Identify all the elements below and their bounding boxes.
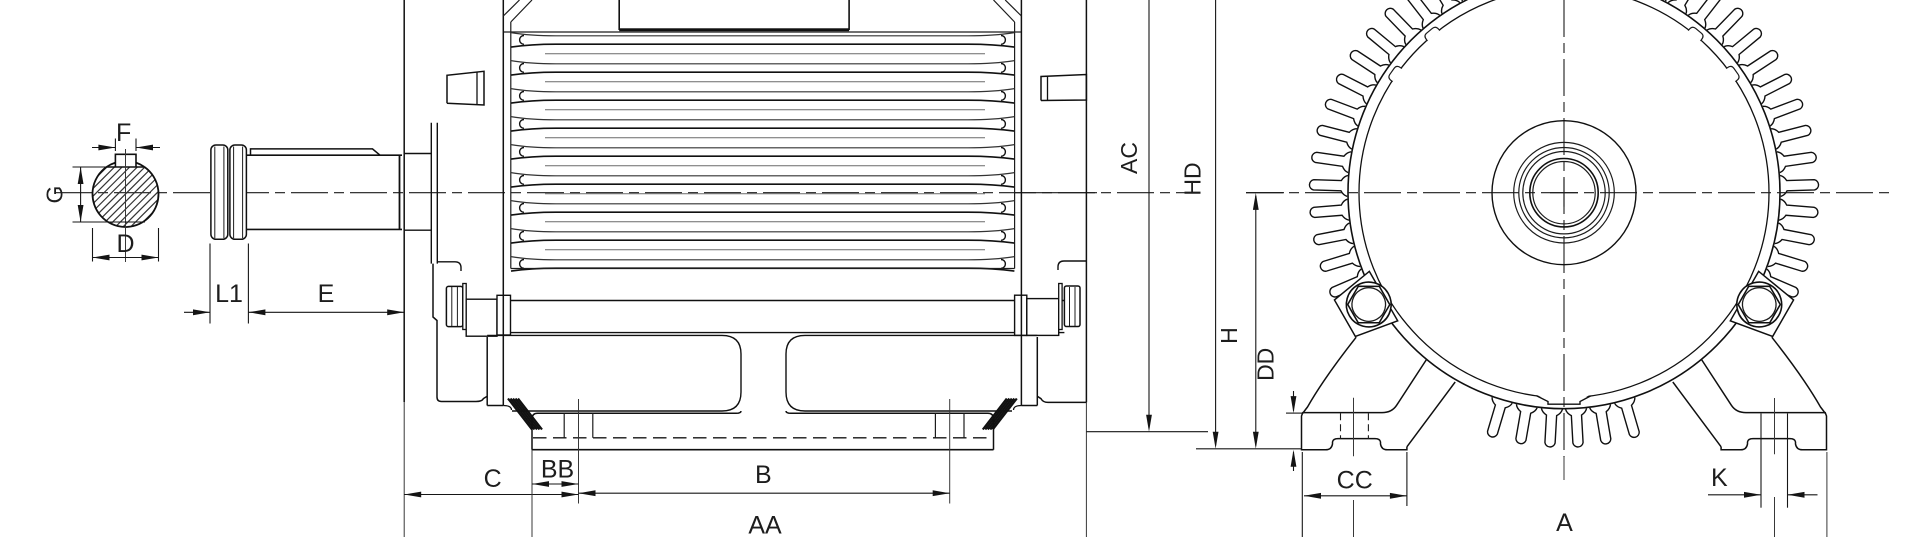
svg-text:C: C: [484, 465, 502, 493]
svg-text:DD: DD: [1253, 348, 1279, 381]
svg-text:F: F: [116, 119, 131, 147]
svg-text:D: D: [116, 230, 134, 258]
svg-text:K: K: [1711, 464, 1728, 492]
svg-text:CC: CC: [1337, 467, 1373, 495]
svg-text:BB: BB: [541, 456, 574, 484]
svg-text:L1: L1: [215, 280, 243, 308]
svg-text:HD: HD: [1180, 162, 1206, 195]
svg-text:A: A: [1556, 509, 1573, 537]
svg-text:AA: AA: [748, 512, 782, 537]
svg-text:H: H: [1216, 327, 1242, 344]
svg-text:E: E: [318, 280, 335, 308]
svg-text:B: B: [755, 461, 772, 489]
svg-text:AC: AC: [1116, 142, 1142, 174]
svg-text:G: G: [42, 186, 68, 204]
